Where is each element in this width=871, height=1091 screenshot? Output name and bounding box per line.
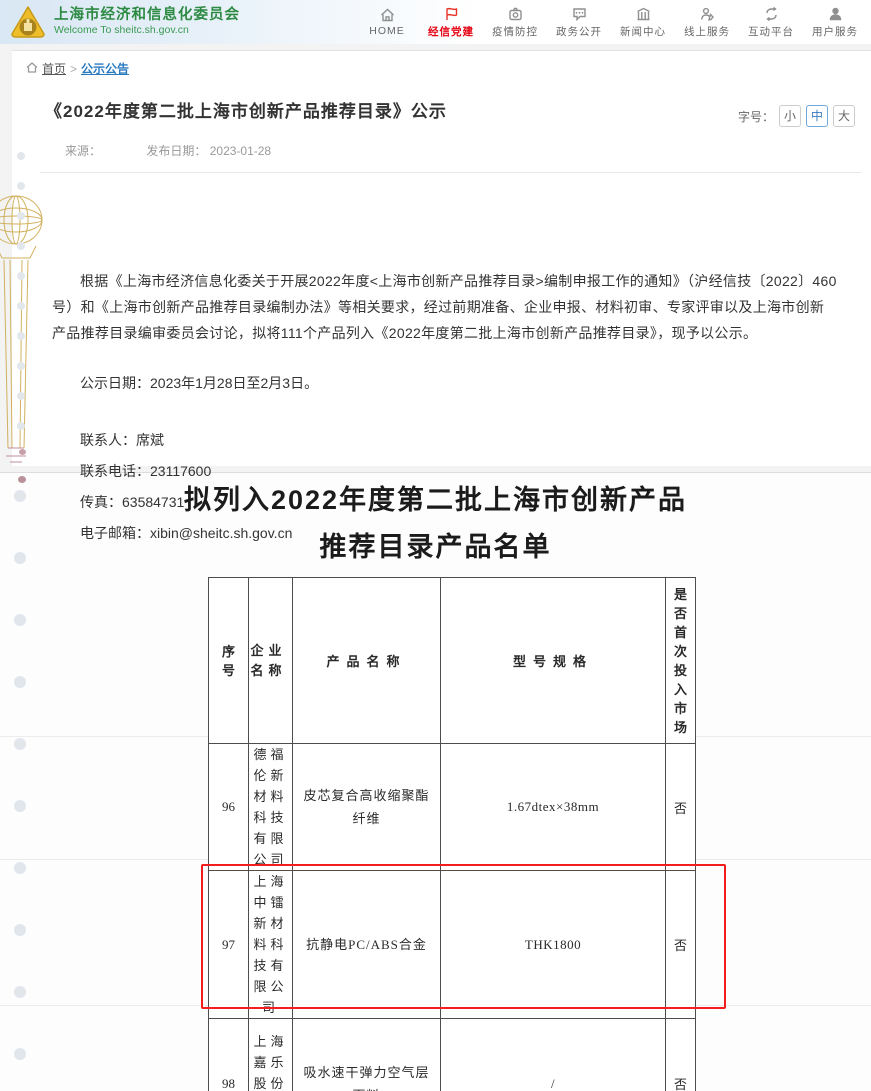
site-title: 上海市经济和信息化委员会: [54, 7, 240, 24]
nav-item-epidemic[interactable]: 疫情防控: [483, 6, 547, 39]
font-size-small-button[interactable]: 小: [779, 105, 801, 127]
document-preview: 拟列入2022年度第二批上海市创新产品 推荐目录产品名单 序号 企业名称 产品名…: [0, 472, 871, 1091]
decorative-dots-lower: [14, 490, 26, 1091]
nav-label: 互动平台: [739, 24, 803, 39]
breadcrumb-separator: >: [70, 62, 77, 76]
decorative-dot: [17, 152, 25, 160]
row-serial: 96: [209, 744, 249, 871]
nav-label: 新闻中心: [611, 24, 675, 39]
decorative-dot: [14, 924, 26, 936]
table-row-highlighted: 97 上海中镭新材料科技有限公司 抗静电PC/ABS合金 THK1800 否: [209, 871, 696, 1019]
breadcrumb-home-link[interactable]: 首页: [42, 60, 66, 77]
chat-bubble-icon: [547, 6, 611, 21]
nav-label: 线上服务: [675, 24, 739, 39]
decorative-dot: [17, 332, 25, 340]
font-size-label: 字号：: [738, 108, 774, 125]
decorative-dot: [17, 272, 25, 280]
product-table: 序号 企业名称 产品名称 型号规格 是否首次投入市场 96 德福伦新材料科技有限…: [208, 577, 696, 1091]
publish-date: 2023-01-28: [210, 144, 271, 158]
decorative-dot: [17, 362, 25, 370]
nav-label: 经信党建: [419, 24, 483, 39]
party-flag-icon: [419, 6, 483, 21]
row-serial: 98: [209, 1019, 249, 1091]
nav-item-interactive[interactable]: 互动平台: [739, 6, 803, 39]
decorative-dot: [17, 392, 25, 400]
product-table-wrap: 序号 企业名称 产品名称 型号规格 是否首次投入市场 96 德福伦新材料科技有限…: [208, 577, 698, 1091]
nav-item-news[interactable]: 新闻中心: [611, 6, 675, 39]
contact-phone: 联系电话：23117600: [52, 461, 837, 481]
contact-person: 联系人：席斌: [52, 430, 837, 450]
breadcrumb-current-link[interactable]: 公示公告: [81, 60, 129, 77]
news-building-icon: [611, 6, 675, 21]
site-header: 上海市经济和信息化委员会 Welcome To sheitc.sh.gov.cn…: [0, 0, 871, 44]
nav-label: 疫情防控: [483, 24, 547, 39]
user-pen-icon: [675, 6, 739, 21]
home-icon: [355, 7, 419, 22]
article-paragraph: 根据《上海市经济信息化委关于开展2022年度<上海市创新产品推荐目录>编制申报工…: [52, 268, 837, 346]
home-icon: [26, 62, 38, 76]
source-label: 来源：: [65, 144, 101, 158]
row-company: 上海嘉乐股份有限公司: [249, 1019, 293, 1091]
main-nav: HOME 经信党建 疫情防控 政务公开 新闻中心: [355, 0, 867, 44]
decorative-dot: [14, 614, 26, 626]
decorative-dot: [14, 552, 26, 564]
user-icon: [803, 6, 867, 21]
decorative-dot: [14, 1048, 26, 1060]
decorative-dot: [14, 738, 26, 750]
row-product: 皮芯复合高收缩聚酯纤维: [293, 744, 441, 871]
camera-shield-icon: [483, 6, 547, 21]
decorative-dot: [14, 676, 26, 688]
font-size-medium-button[interactable]: 中: [806, 105, 828, 127]
logo[interactable]: 上海市经济和信息化委员会 Welcome To sheitc.sh.gov.cn: [0, 5, 240, 39]
row-model: 1.67dtex×38mm: [441, 744, 666, 871]
decorative-dot: [14, 862, 26, 874]
nav-label: HOME: [355, 25, 419, 37]
logo-icon: [10, 5, 46, 39]
decorative-dot: [17, 182, 25, 190]
nav-item-party[interactable]: 经信党建: [419, 6, 483, 39]
decorative-dot: [19, 449, 26, 455]
row-first-market: 否: [666, 871, 696, 1019]
header-first-market: 是否首次投入市场: [666, 578, 696, 744]
row-model: THK1800: [441, 871, 666, 1019]
publish-date-label: 发布日期：: [146, 144, 206, 158]
article-card: 首页 > 公示公告 《2022年度第二批上海市创新产品推荐目录》公示 来源： 发…: [12, 50, 871, 466]
decorative-dot: [14, 490, 26, 502]
decorative-dot: [17, 242, 25, 250]
header-serial: 序号: [209, 578, 249, 744]
nav-item-home[interactable]: HOME: [355, 7, 419, 37]
brand-text: 上海市经济和信息化委员会 Welcome To sheitc.sh.gov.cn: [54, 7, 240, 37]
row-product: 抗静电PC/ABS合金: [293, 871, 441, 1019]
decorative-dot: [14, 986, 26, 998]
sync-arrows-icon: [739, 6, 803, 21]
table-row: 98 上海嘉乐股份有限公司 吸水速干弹力空气层面料 / 否: [209, 1019, 696, 1091]
row-first-market: 否: [666, 1019, 696, 1091]
decorative-dot: [14, 800, 26, 812]
nav-label: 用户服务: [803, 24, 867, 39]
decorative-dots-upper: [17, 152, 25, 452]
decorative-dot: [17, 422, 25, 430]
decorative-dot: [18, 476, 26, 483]
row-product: 吸水速干弹力空气层面料: [293, 1019, 441, 1091]
row-company: 德福伦新材料科技有限公司: [249, 744, 293, 871]
font-size-large-button[interactable]: 大: [833, 105, 855, 127]
meta-divider: [40, 172, 861, 173]
row-serial: 97: [209, 871, 249, 1019]
font-size-widget: 字号： 小 中 大: [738, 105, 855, 127]
nav-label: 政务公开: [547, 24, 611, 39]
notice-period: 公示日期：2023年1月28日至2月3日。: [52, 373, 837, 393]
header-product: 产品名称: [293, 578, 441, 744]
header-model: 型号规格: [441, 578, 666, 744]
breadcrumb: 首页 > 公示公告: [12, 51, 871, 77]
nav-item-online-service[interactable]: 线上服务: [675, 6, 739, 39]
decorative-dot: [17, 212, 25, 220]
table-row: 96 德福伦新材料科技有限公司 皮芯复合高收缩聚酯纤维 1.67dtex×38m…: [209, 744, 696, 871]
contact-fax: 传真：63584731: [52, 492, 837, 512]
nav-item-user-service[interactable]: 用户服务: [803, 6, 867, 39]
decorative-dot: [17, 302, 25, 310]
article-meta: 来源： 发布日期： 2023-01-28: [65, 142, 871, 159]
nav-item-gov-info[interactable]: 政务公开: [547, 6, 611, 39]
row-company: 上海中镭新材料科技有限公司: [249, 871, 293, 1019]
row-model: /: [441, 1019, 666, 1091]
header-company: 企业名称: [249, 578, 293, 744]
table-header-row: 序号 企业名称 产品名称 型号规格 是否首次投入市场: [209, 578, 696, 744]
site-subtitle: Welcome To sheitc.sh.gov.cn: [54, 24, 240, 37]
row-first-market: 否: [666, 744, 696, 871]
contact-email: 电子邮箱：xibin@sheitc.sh.gov.cn: [52, 523, 837, 543]
